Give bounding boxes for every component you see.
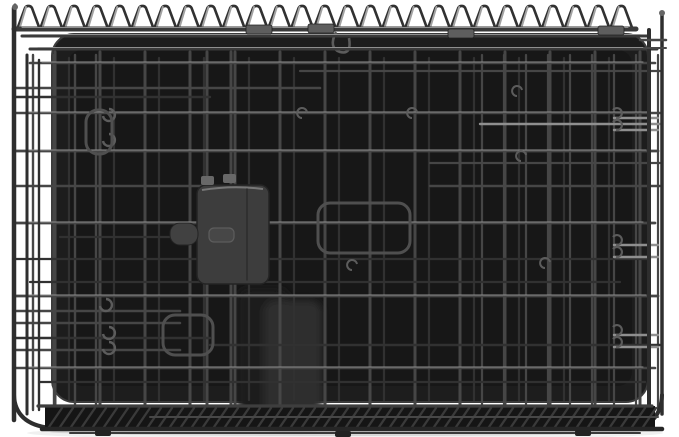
dog-crate-illustration xyxy=(0,0,679,437)
bottom-mesh-edge xyxy=(38,406,662,437)
product-photo: Product photo: a black folding metal wir… xyxy=(0,0,679,437)
